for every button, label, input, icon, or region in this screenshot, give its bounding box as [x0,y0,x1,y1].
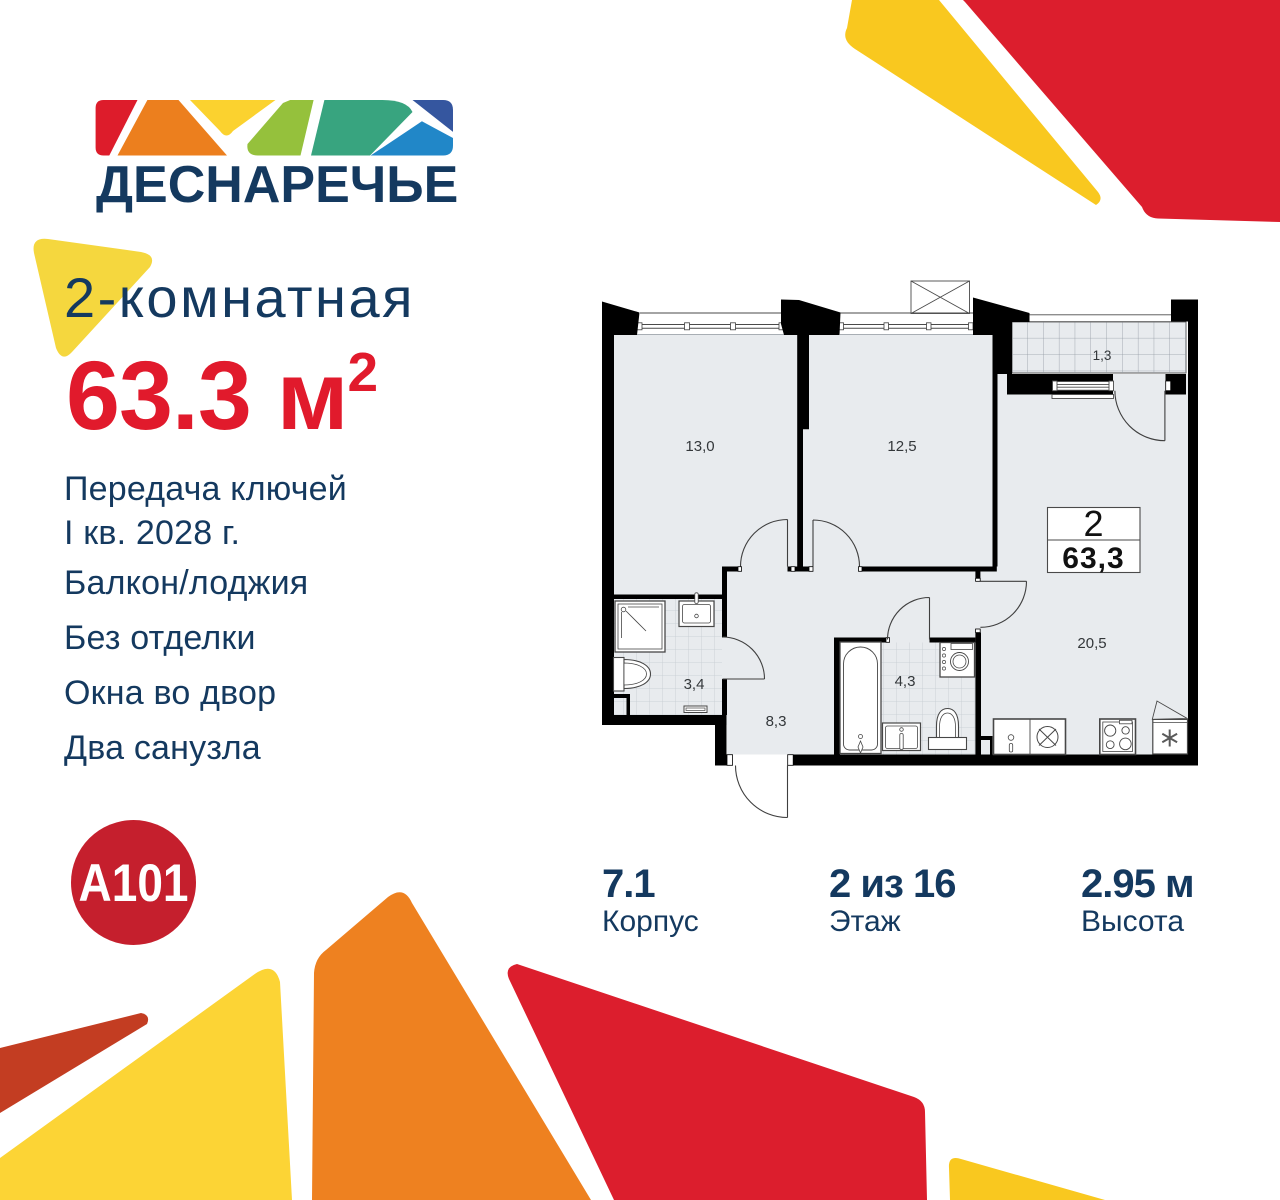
svg-text:20,5: 20,5 [1077,635,1106,652]
svg-text:12,5: 12,5 [887,438,916,455]
svg-text:4,3: 4,3 [895,673,916,690]
svg-text:3,4: 3,4 [684,676,705,693]
svg-text:1,3: 1,3 [1093,348,1112,363]
svg-text:8,3: 8,3 [766,713,787,730]
svg-text:2: 2 [1083,503,1103,544]
svg-text:63,3: 63,3 [1062,542,1124,575]
svg-text:A101: A101 [79,854,189,913]
svg-text:13,0: 13,0 [685,438,714,455]
